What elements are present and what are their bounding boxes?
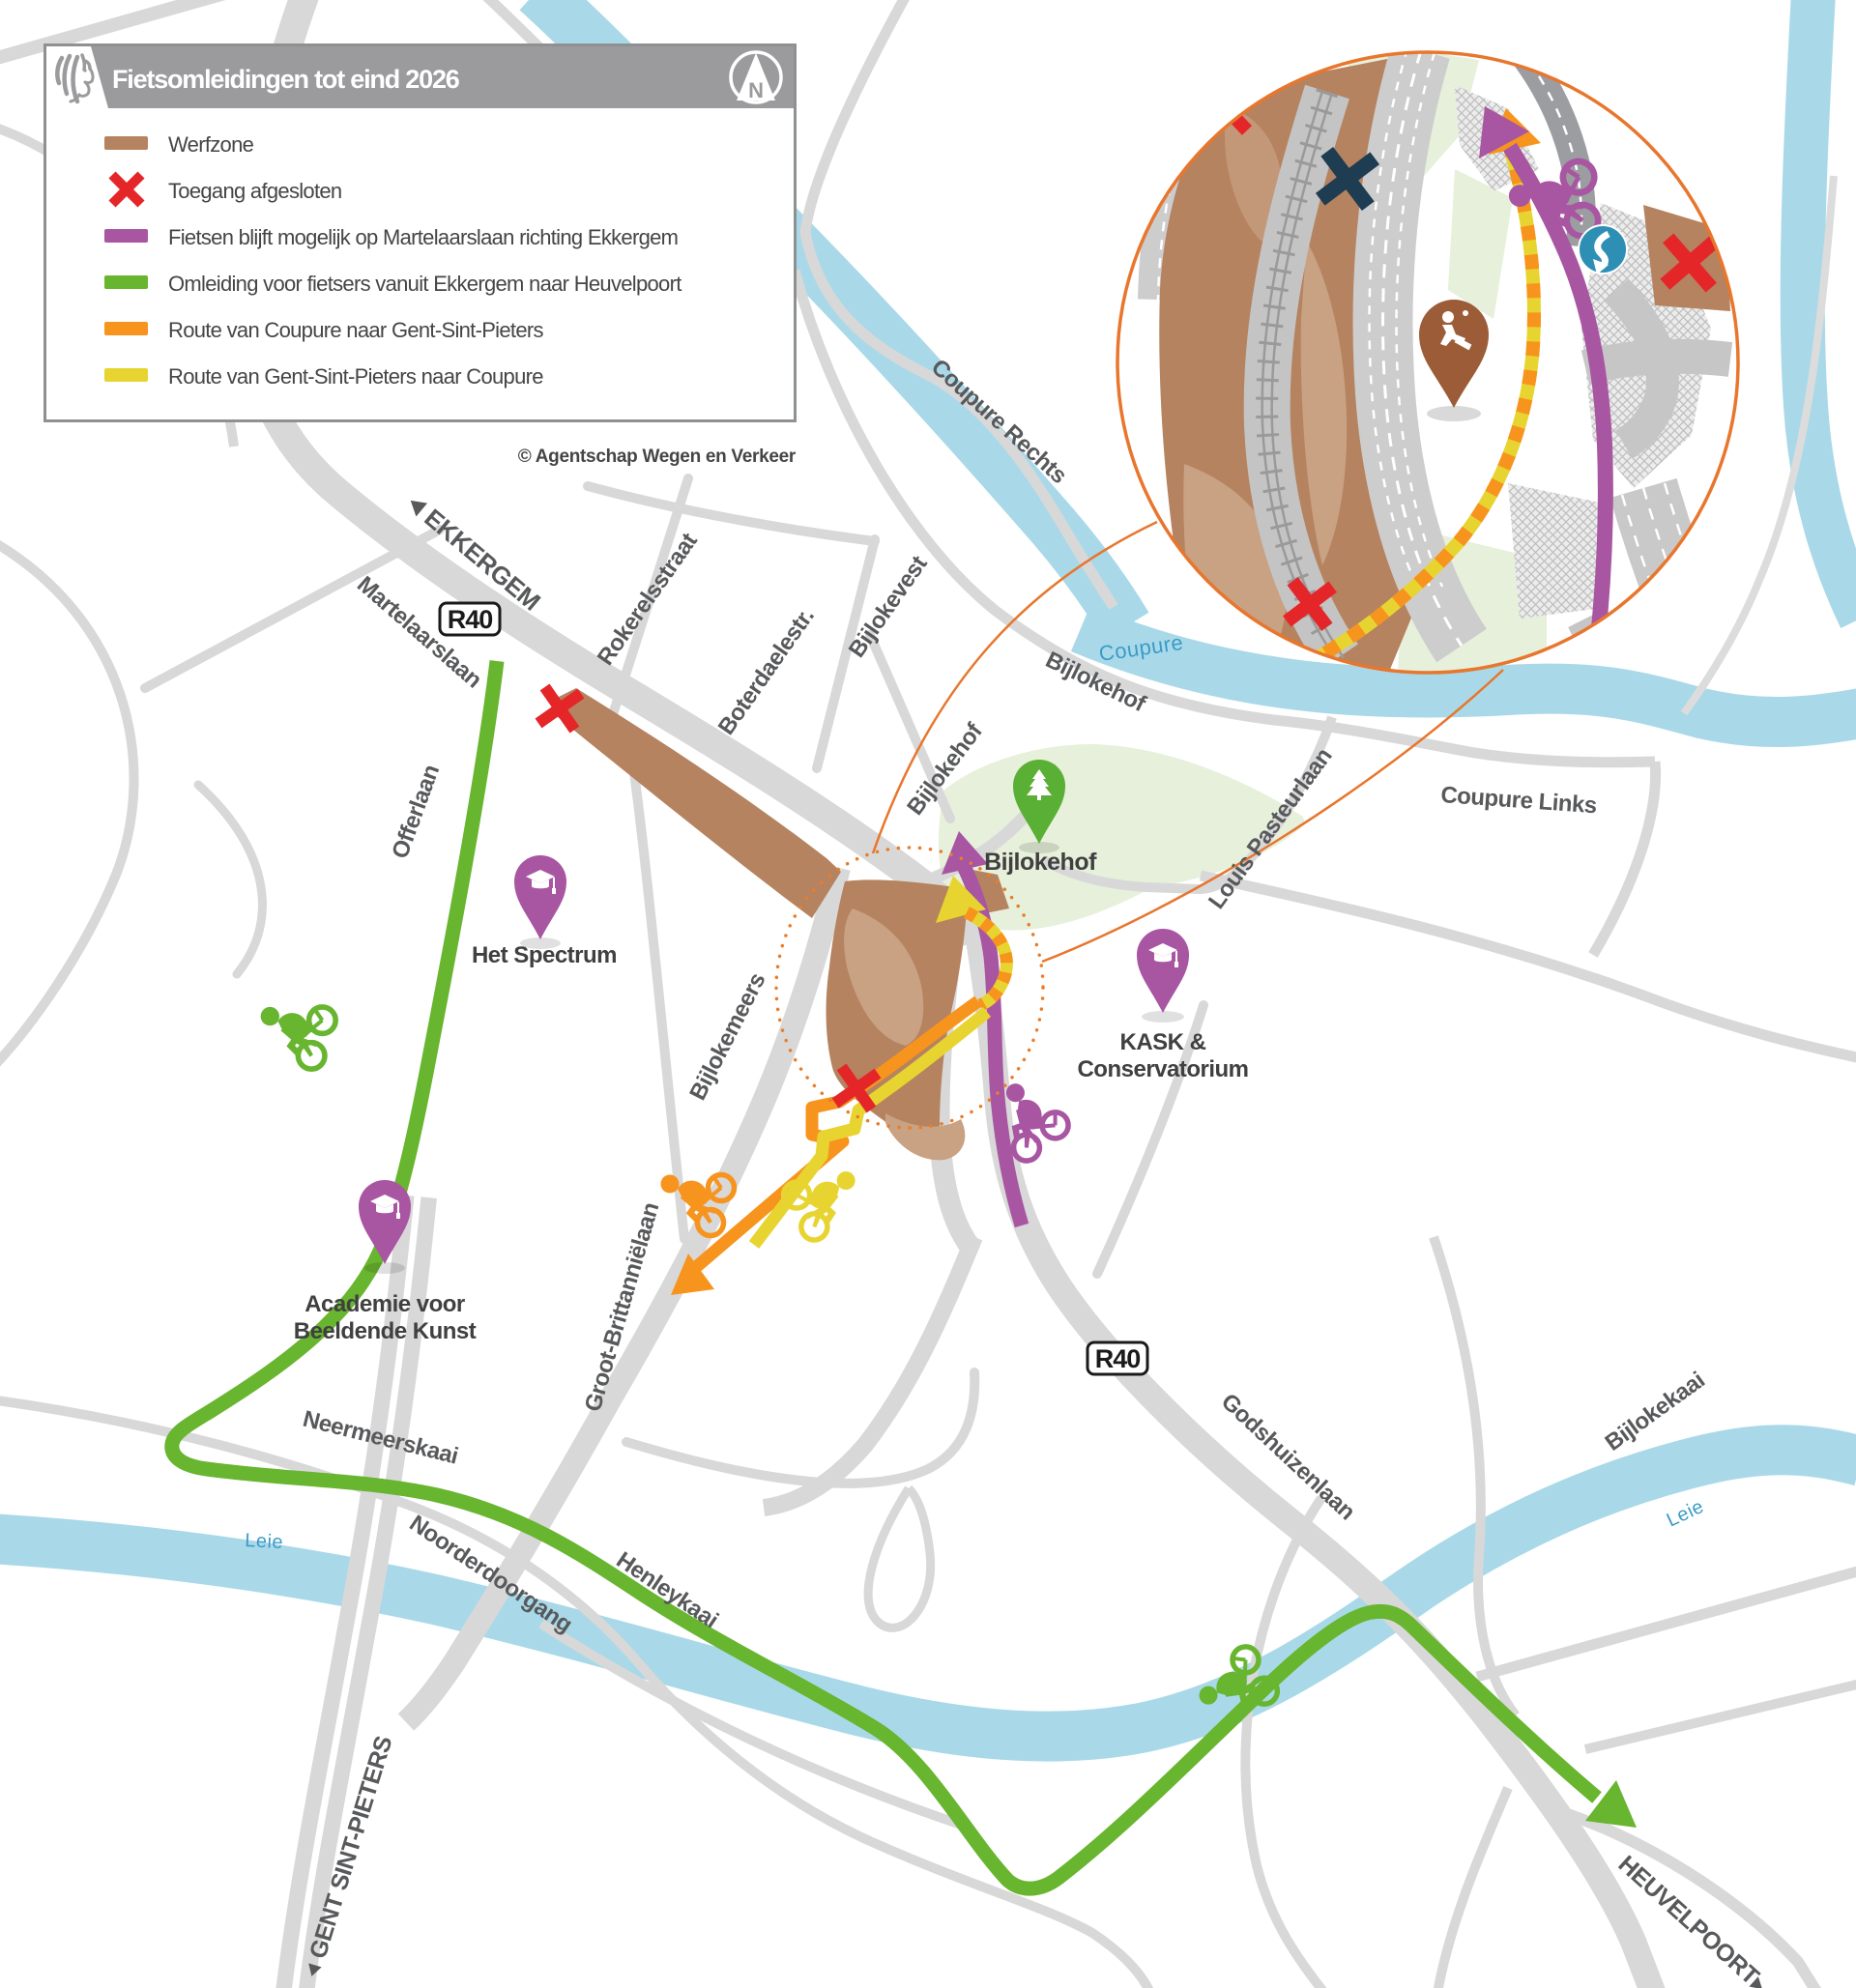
svg-text:Academie voor: Academie voor bbox=[304, 1291, 465, 1317]
svg-text:R40: R40 bbox=[448, 605, 493, 634]
svg-text:Toegang afgesloten: Toegang afgesloten bbox=[168, 179, 341, 203]
svg-text:R40: R40 bbox=[1095, 1344, 1141, 1373]
svg-text:Omleiding voor fietsers vanuit: Omleiding voor fietsers vanuit Ekkergem … bbox=[168, 272, 681, 296]
svg-text:N: N bbox=[748, 78, 764, 102]
svg-text:Fietsomleidingen tot eind 2026: Fietsomleidingen tot eind 2026 bbox=[112, 65, 460, 94]
svg-text:KASK &: KASK & bbox=[1119, 1029, 1205, 1055]
svg-text:Het Spectrum: Het Spectrum bbox=[472, 942, 617, 968]
svg-text:Beeldende Kunst: Beeldende Kunst bbox=[294, 1318, 477, 1344]
svg-text:Leie: Leie bbox=[245, 1530, 284, 1553]
svg-text:Werfzone: Werfzone bbox=[168, 132, 254, 157]
svg-text:Bijlokehof: Bijlokehof bbox=[984, 849, 1097, 876]
svg-text:© Agentschap Wegen en Verkeer: © Agentschap Wegen en Verkeer bbox=[518, 447, 797, 467]
svg-text:Fietsen blijft mogelijk op Mar: Fietsen blijft mogelijk op Martelaarslaa… bbox=[168, 225, 678, 249]
svg-text:Conservatorium: Conservatorium bbox=[1077, 1056, 1248, 1082]
svg-text:Route van Coupure naar Gent-Si: Route van Coupure naar Gent-Sint-Pieters bbox=[168, 318, 543, 342]
svg-text:Route van Gent-Sint-Pieters na: Route van Gent-Sint-Pieters naar Coupure bbox=[168, 364, 543, 389]
